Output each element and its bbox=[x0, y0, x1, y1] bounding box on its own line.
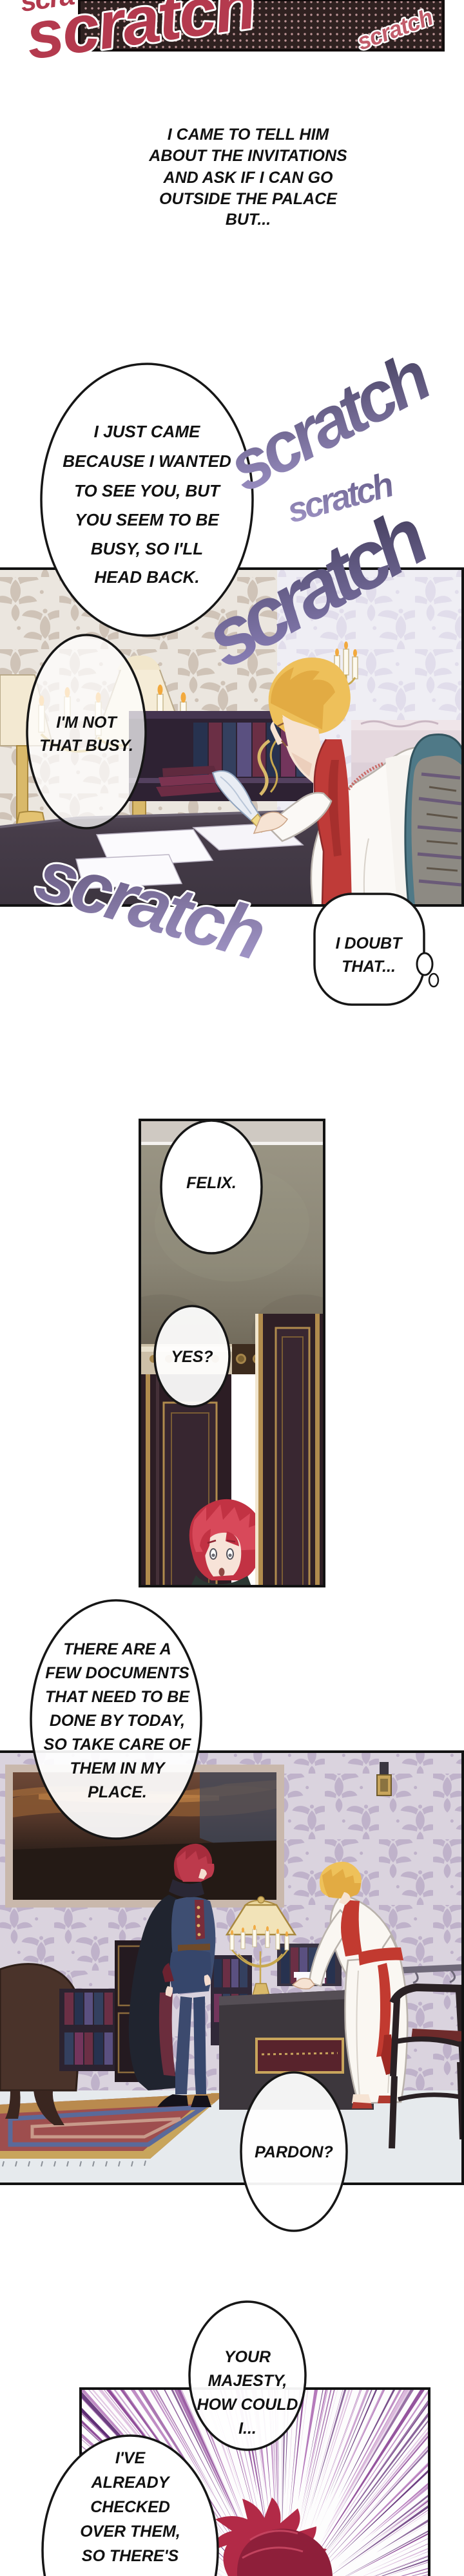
svg-text:THERE ARE A: THERE ARE A bbox=[63, 1640, 171, 1658]
svg-text:THEM IN MY: THEM IN MY bbox=[70, 1759, 166, 1777]
svg-text:I'M NOT: I'M NOT bbox=[56, 714, 118, 732]
svg-text:YOU SEEM TO BE: YOU SEEM TO BE bbox=[75, 510, 219, 529]
svg-text:FELIX.: FELIX. bbox=[186, 1174, 237, 1192]
svg-text:I'VE: I'VE bbox=[115, 2449, 146, 2467]
svg-text:SO TAKE CARE OF: SO TAKE CARE OF bbox=[44, 1736, 191, 1754]
svg-text:BUT...: BUT... bbox=[226, 211, 271, 229]
svg-text:HEAD BACK.: HEAD BACK. bbox=[94, 567, 199, 587]
svg-text:OVER THEM,: OVER THEM, bbox=[80, 2523, 180, 2541]
svg-text:HOW COULD: HOW COULD bbox=[197, 2396, 298, 2414]
svg-text:YOUR: YOUR bbox=[224, 2348, 271, 2366]
svg-text:scratch: scratch bbox=[21, 0, 259, 74]
svg-text:I CAME TO TELL HIM: I CAME TO TELL HIM bbox=[168, 126, 330, 144]
svg-text:YES?: YES? bbox=[171, 1348, 213, 1366]
svg-text:THAT...: THAT... bbox=[342, 958, 396, 976]
svg-text:ALREADY: ALREADY bbox=[91, 2474, 171, 2492]
svg-text:SO THERE'S: SO THERE'S bbox=[82, 2547, 179, 2565]
svg-text:BUSY, SO I'LL: BUSY, SO I'LL bbox=[91, 539, 203, 558]
svg-text:CHECKED: CHECKED bbox=[90, 2498, 170, 2516]
svg-text:I...: I... bbox=[238, 2420, 256, 2438]
svg-text:TO SEE YOU, BUT: TO SEE YOU, BUT bbox=[74, 481, 221, 500]
svg-text:THAT NEED TO BE: THAT NEED TO BE bbox=[45, 1688, 190, 1706]
svg-text:MAJESTY,: MAJESTY, bbox=[208, 2372, 287, 2390]
svg-text:BECAUSE I WANTED: BECAUSE I WANTED bbox=[63, 451, 231, 471]
svg-text:OUTSIDE THE PALACE: OUTSIDE THE PALACE bbox=[159, 190, 338, 208]
svg-text:PARDON?: PARDON? bbox=[255, 2143, 333, 2161]
svg-text:ABOUT THE INVITATIONS: ABOUT THE INVITATIONS bbox=[148, 147, 347, 165]
svg-text:I JUST CAME: I JUST CAME bbox=[94, 422, 200, 441]
svg-text:I DOUBT: I DOUBT bbox=[336, 934, 404, 952]
svg-text:PLACE.: PLACE. bbox=[88, 1783, 147, 1801]
svg-text:DONE BY TODAY,: DONE BY TODAY, bbox=[50, 1712, 185, 1730]
svg-text:THAT BUSY.: THAT BUSY. bbox=[39, 737, 133, 755]
svg-text:FEW DOCUMENTS: FEW DOCUMENTS bbox=[45, 1664, 189, 1682]
svg-text:AND ASK IF I CAN GO: AND ASK IF I CAN GO bbox=[163, 169, 334, 187]
